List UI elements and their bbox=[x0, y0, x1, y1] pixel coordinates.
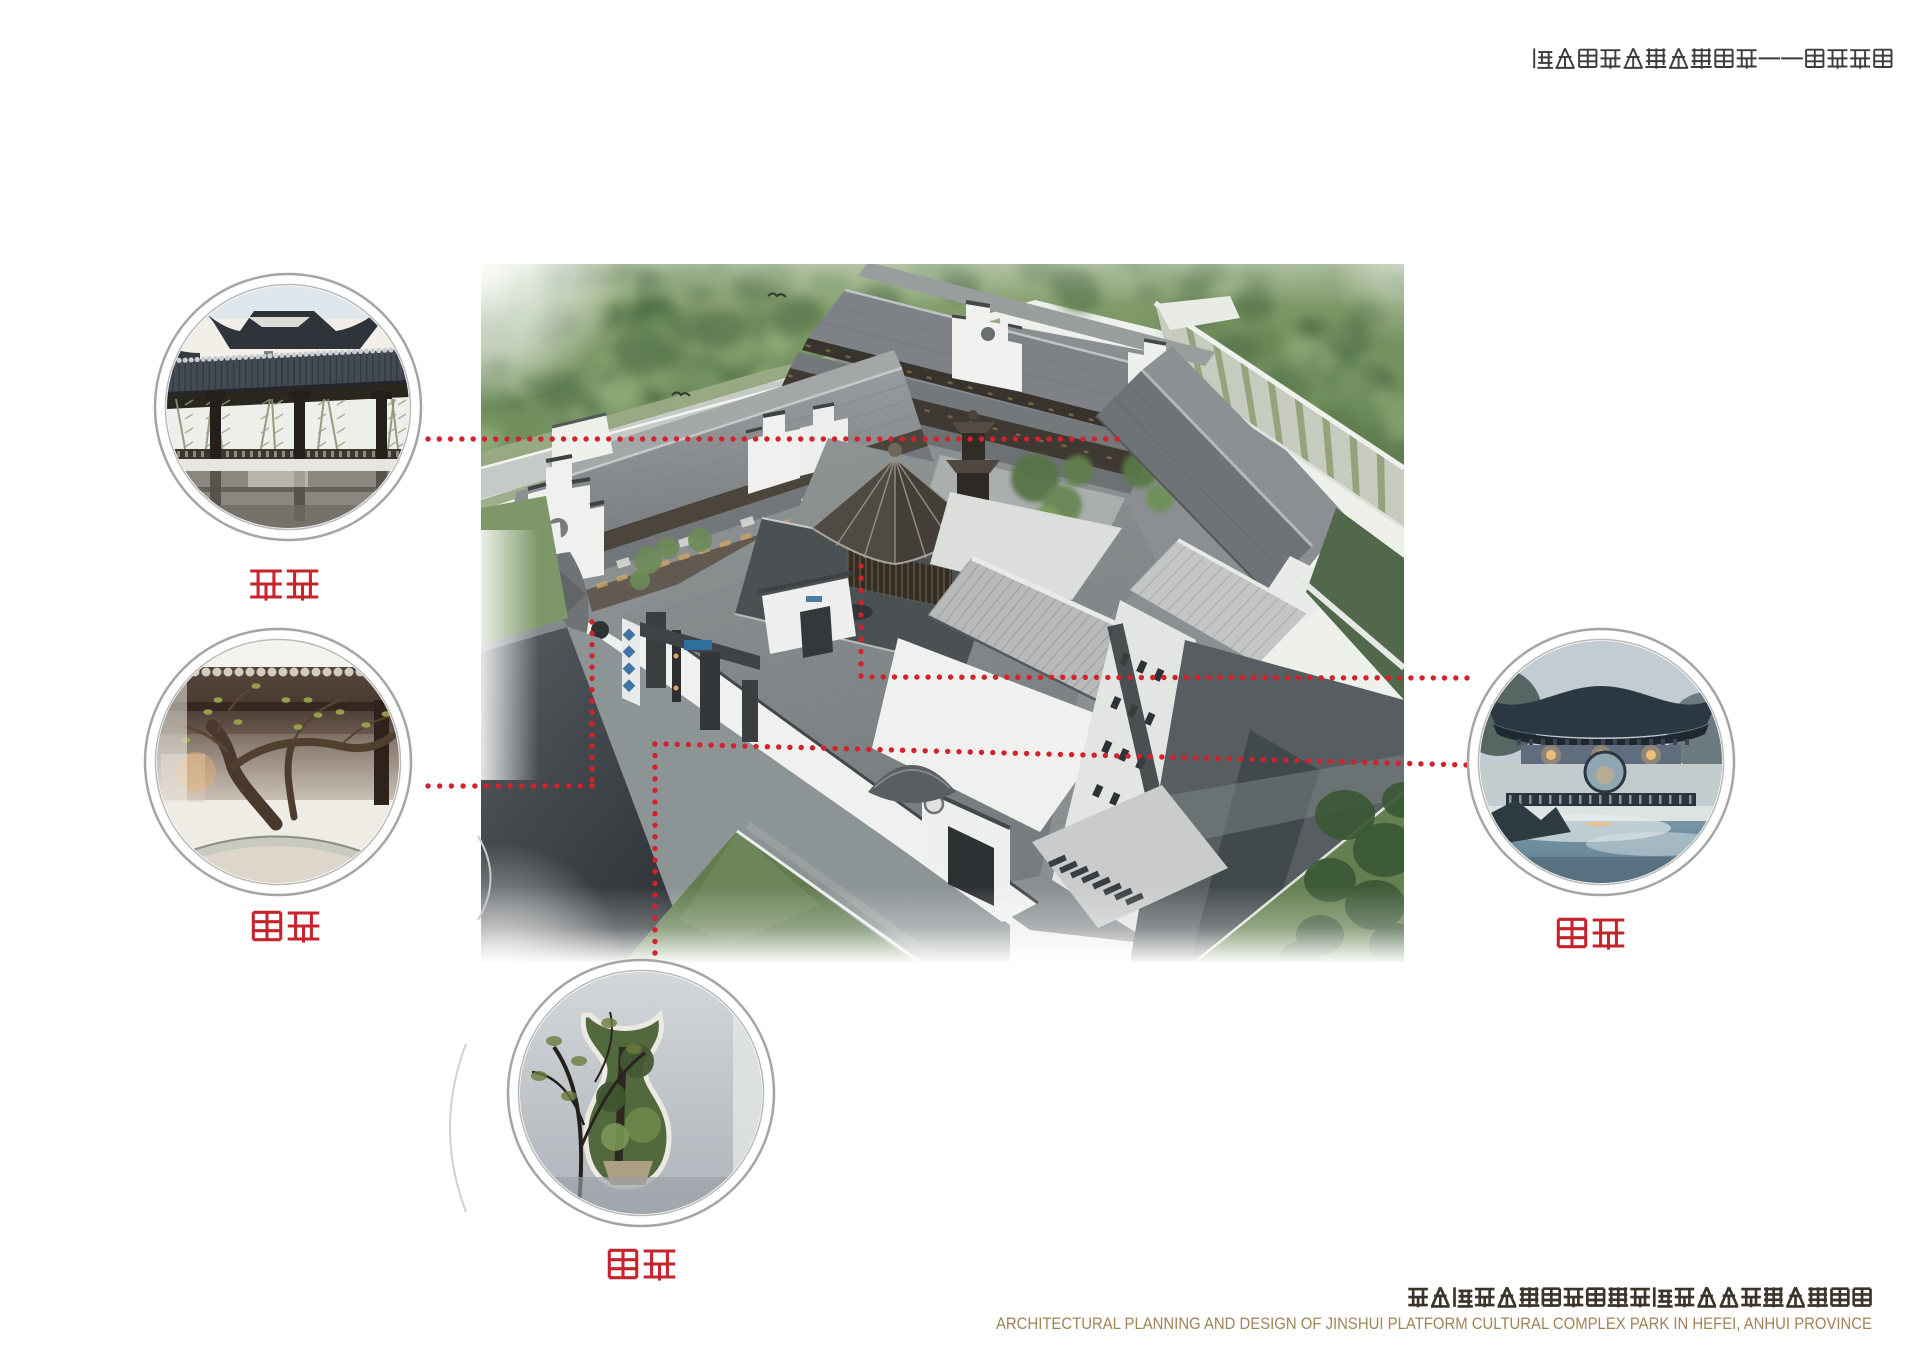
svg-text:ARCHITECTURAL PLANNING AND DES: ARCHITECTURAL PLANNING AND DESIGN OF JIN… bbox=[996, 1314, 1872, 1333]
